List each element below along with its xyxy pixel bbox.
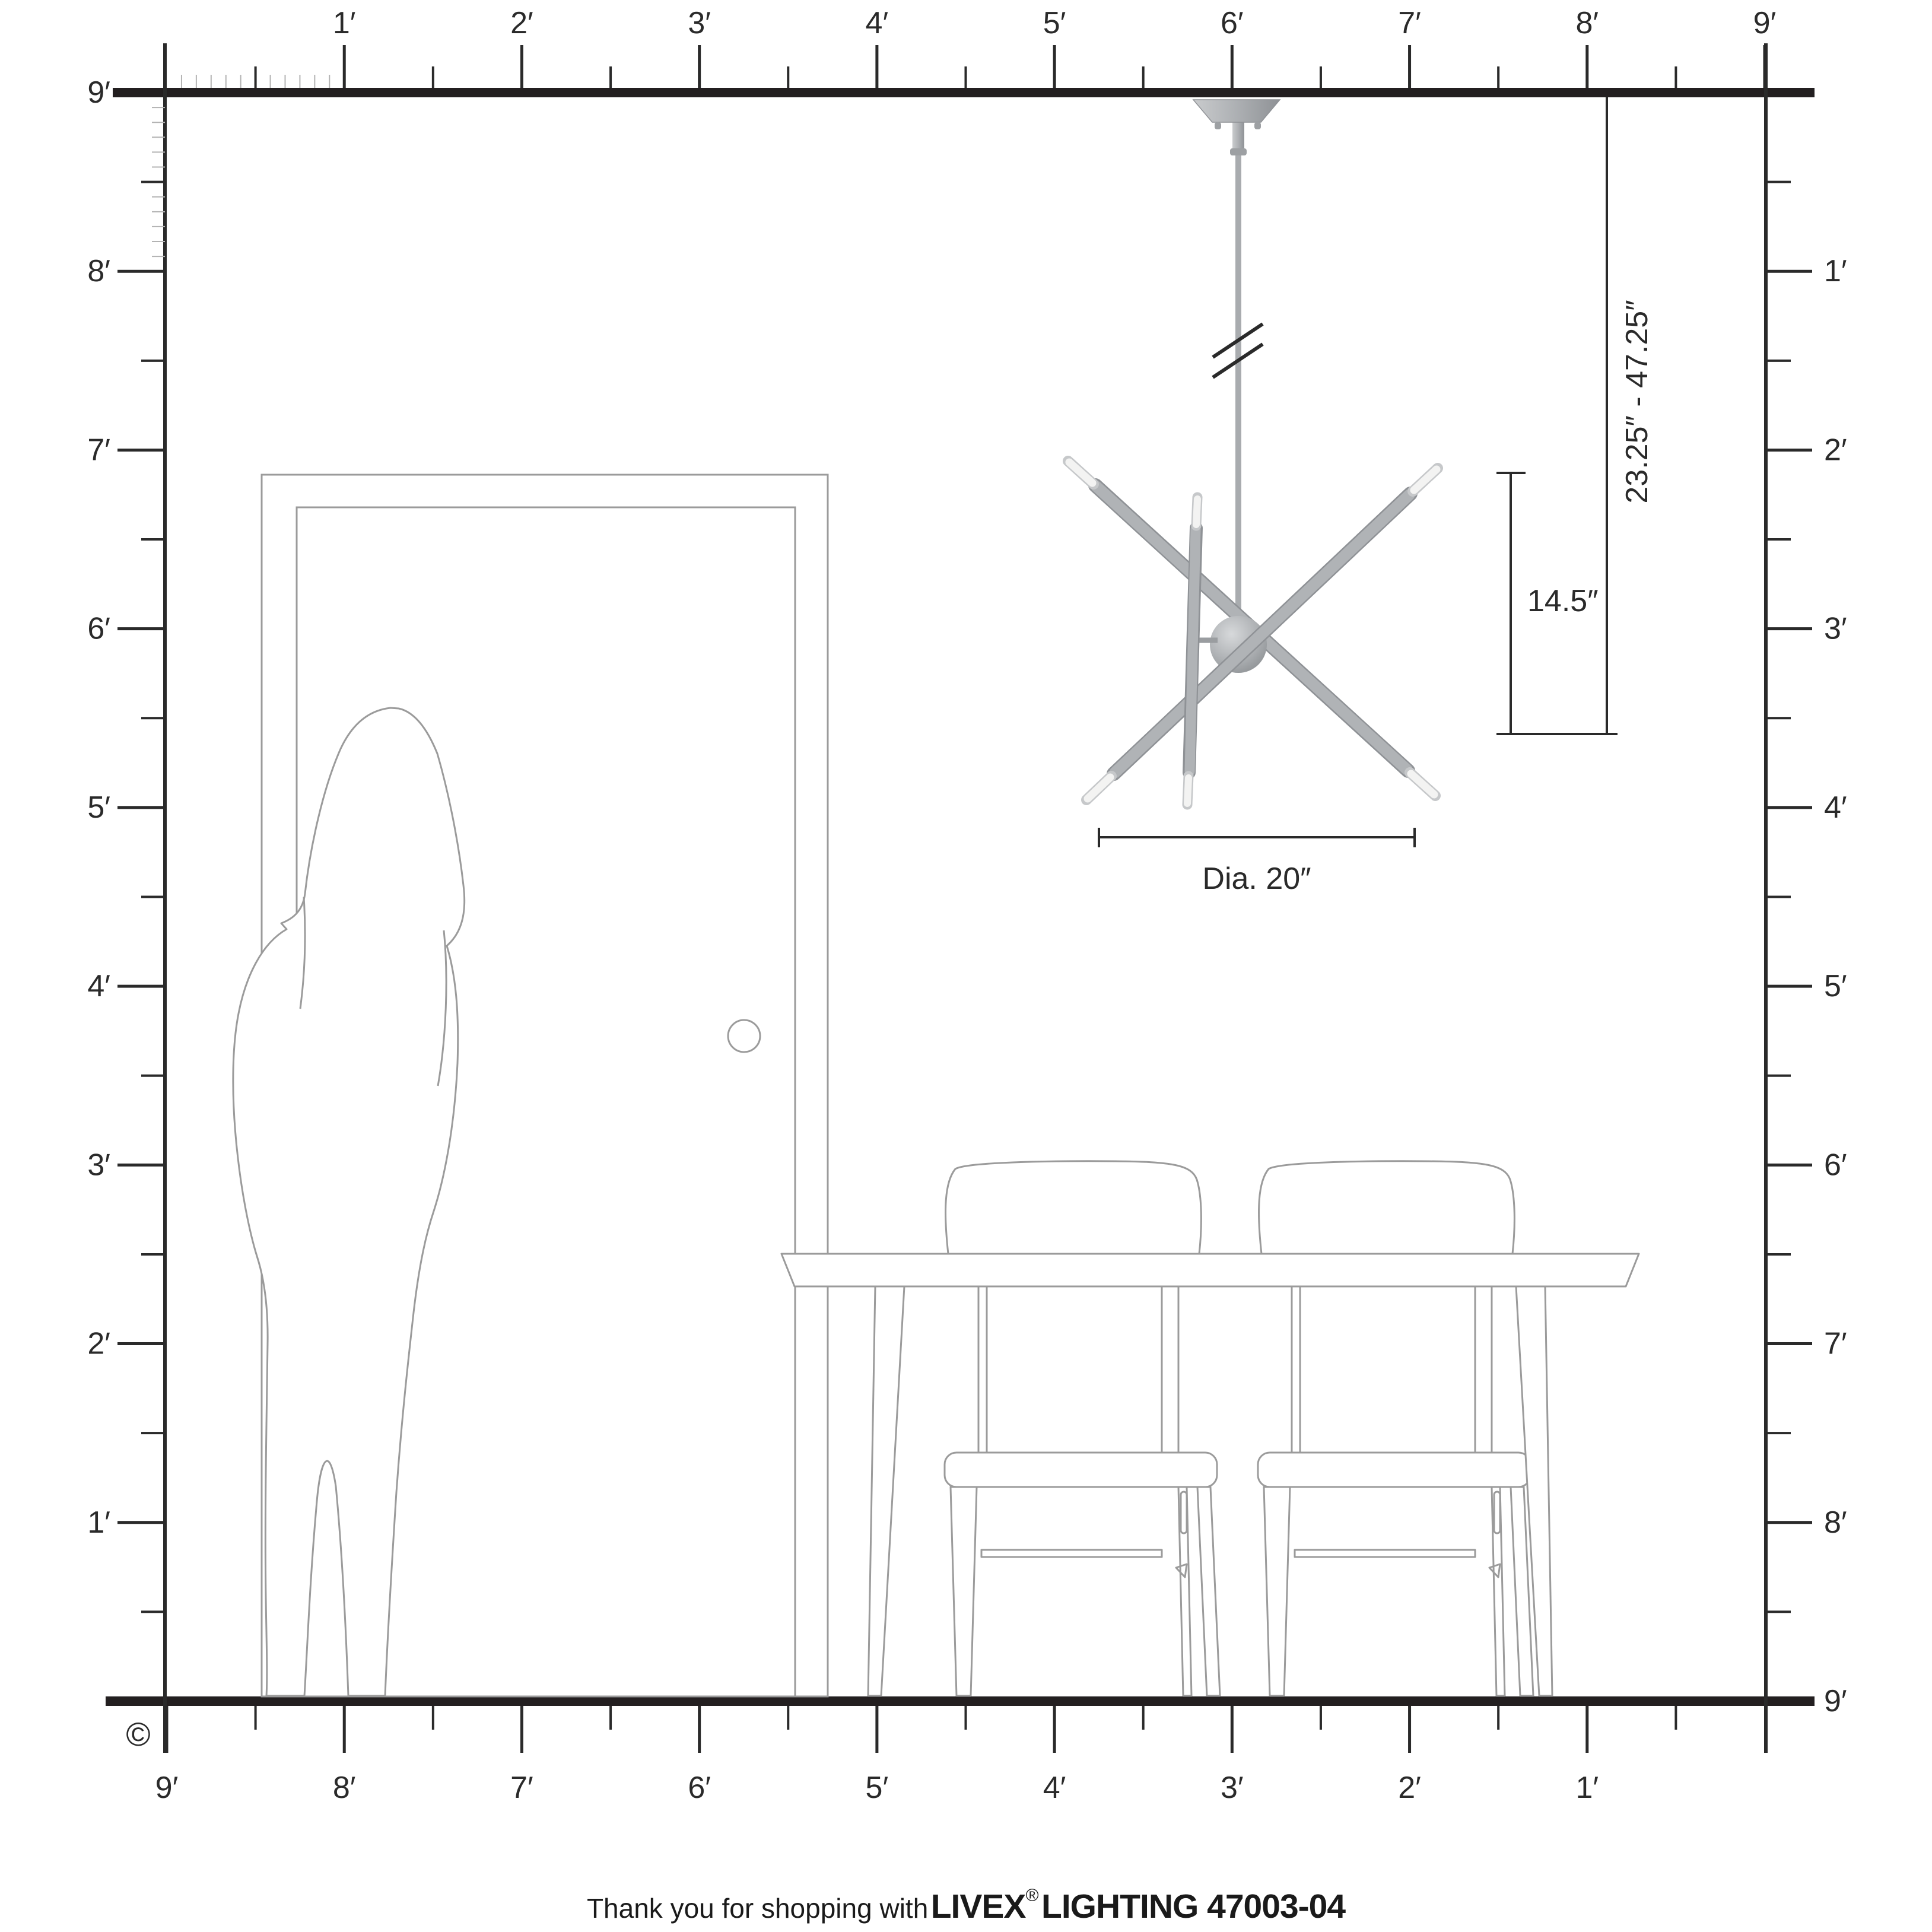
ceiling-bar bbox=[113, 88, 1815, 97]
footer-text: Thank you for shopping with bbox=[587, 1893, 928, 1924]
floor-bar bbox=[106, 1696, 1815, 1706]
left-ruler-label: 9′ bbox=[87, 75, 110, 110]
bottom-ruler-label: 1′ bbox=[1575, 1771, 1599, 1805]
chair-leg bbox=[1264, 1487, 1290, 1696]
top-ruler-label: 7′ bbox=[1398, 6, 1421, 40]
right-ruler-label: 1′ bbox=[1824, 254, 1847, 288]
chair bbox=[945, 1161, 1220, 1696]
registered-trademark-icon: ® bbox=[1025, 1886, 1038, 1905]
left-ruler-label: 7′ bbox=[87, 433, 110, 467]
door-knob bbox=[728, 1020, 760, 1052]
right-ruler-label: 4′ bbox=[1824, 790, 1847, 825]
right-ruler-label: 3′ bbox=[1824, 612, 1847, 646]
top-ruler-label: 8′ bbox=[1575, 6, 1599, 40]
light-bulb bbox=[1196, 499, 1197, 525]
bottom-ruler-label: 4′ bbox=[1043, 1771, 1066, 1805]
chair-back-post bbox=[1475, 1286, 1492, 1453]
dimension-diagram: Dia. 20″ 14.5″ 23.25″ - 47.25″ 1′2′3′4′5… bbox=[0, 0, 1932, 1932]
light-bulb bbox=[1088, 777, 1110, 799]
chair-back-post bbox=[1162, 1286, 1178, 1453]
chair-back-post bbox=[978, 1286, 987, 1453]
right-ruler-label: 7′ bbox=[1824, 1327, 1847, 1361]
chair-seat bbox=[1258, 1453, 1530, 1487]
bottom-ruler-label: 2′ bbox=[1398, 1771, 1421, 1805]
left-ruler-label: 8′ bbox=[87, 254, 110, 288]
light-bulb bbox=[1411, 774, 1434, 795]
bottom-ruler-label: 9′ bbox=[155, 1771, 179, 1805]
light-bulb bbox=[1069, 462, 1092, 483]
chair-back-post bbox=[1292, 1286, 1300, 1453]
downrod bbox=[1235, 155, 1241, 618]
suspension-range-label: 23.25″ - 47.25″ bbox=[1620, 300, 1654, 503]
top-ruler-label: 1′ bbox=[333, 6, 356, 40]
bottom-ruler-label: 3′ bbox=[1221, 1771, 1244, 1805]
top-ruler-label: 2′ bbox=[510, 6, 533, 40]
left-ruler-label: 1′ bbox=[87, 1505, 110, 1540]
chair-backrest bbox=[946, 1161, 1202, 1254]
sputnik-chandelier bbox=[1068, 100, 1438, 805]
top-ruler-label: 4′ bbox=[866, 6, 889, 40]
top-ruler-label: 6′ bbox=[1221, 6, 1244, 40]
chair-leg bbox=[951, 1487, 977, 1696]
chair-stretcher bbox=[981, 1550, 1162, 1557]
canopy-screw bbox=[1215, 122, 1221, 129]
light-bulb bbox=[1187, 778, 1189, 803]
right-ruler-label: 6′ bbox=[1824, 1148, 1847, 1182]
dining-chairs bbox=[945, 1161, 1533, 1696]
chair-leg bbox=[1197, 1487, 1220, 1696]
footer-model-number: LIGHTING 47003-04 bbox=[1041, 1887, 1345, 1925]
table-top bbox=[781, 1254, 1639, 1286]
bottom-ruler-label: 6′ bbox=[688, 1771, 711, 1805]
right-ruler-label: 8′ bbox=[1824, 1505, 1847, 1540]
product-dimension-sheet: Dia. 20″ 14.5″ 23.25″ - 47.25″ 1′2′3′4′5… bbox=[0, 0, 1932, 1932]
chair-seat bbox=[945, 1453, 1217, 1487]
stem-collar bbox=[1230, 148, 1247, 155]
left-ruler-label: 2′ bbox=[87, 1327, 110, 1361]
fixture-height-label: 14.5″ bbox=[1527, 584, 1599, 618]
right-ruler-label: 9′ bbox=[1824, 1684, 1847, 1718]
right-ruler-label: 2′ bbox=[1824, 433, 1847, 467]
left-ruler-label: 4′ bbox=[87, 969, 110, 1003]
table-leg-left bbox=[868, 1286, 904, 1696]
chair-backrest bbox=[1259, 1161, 1515, 1254]
chair bbox=[1258, 1161, 1533, 1696]
diameter-label: Dia. 20″ bbox=[1202, 862, 1311, 896]
bottom-ruler-label: 5′ bbox=[866, 1771, 889, 1805]
right-ruler-label: 5′ bbox=[1824, 969, 1847, 1003]
chair-stretcher bbox=[1295, 1550, 1475, 1557]
top-ruler-label: 3′ bbox=[688, 6, 711, 40]
ceiling-canopy bbox=[1193, 100, 1280, 122]
footer: Thank you for shopping with LIVEX® LIGHT… bbox=[0, 1886, 1932, 1926]
canopy-screw bbox=[1254, 122, 1261, 129]
bottom-ruler-label: 7′ bbox=[510, 1771, 533, 1805]
left-ruler-label: 3′ bbox=[87, 1148, 110, 1182]
left-ruler-label: 6′ bbox=[87, 612, 110, 646]
footer-brand: LIVEX bbox=[931, 1887, 1026, 1925]
top-ruler-label: 9′ bbox=[1753, 6, 1777, 40]
copyright-symbol: © bbox=[126, 1715, 150, 1753]
top-ruler-label: 5′ bbox=[1043, 6, 1066, 40]
bottom-ruler-label: 8′ bbox=[333, 1771, 356, 1805]
left-ruler-label: 5′ bbox=[87, 790, 110, 825]
